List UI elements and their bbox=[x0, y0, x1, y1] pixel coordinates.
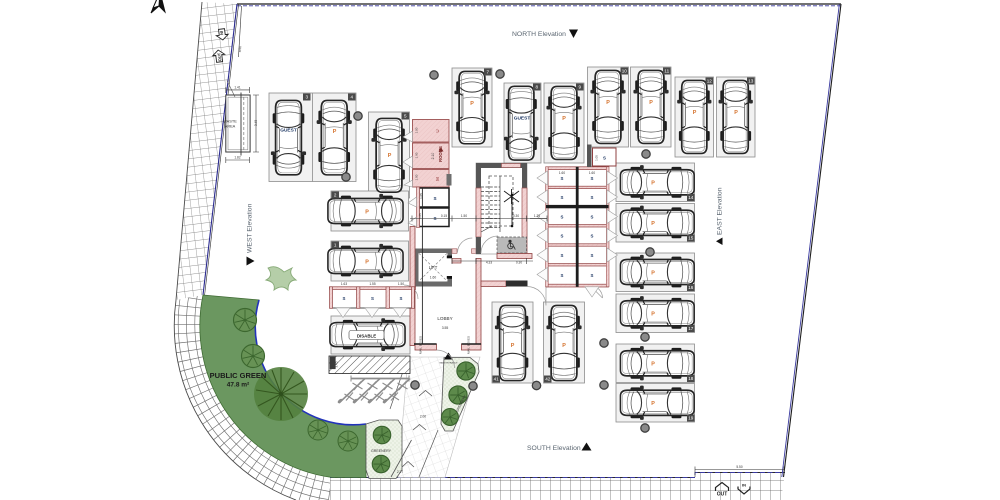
svg-text:1.00: 1.00 bbox=[415, 174, 419, 180]
svg-text:1.60: 1.60 bbox=[589, 171, 595, 175]
svg-text:P: P bbox=[365, 260, 369, 266]
svg-text:MAIL BOXES: MAIL BOXES bbox=[467, 336, 471, 354]
svg-text:P: P bbox=[365, 210, 369, 216]
svg-text:OUT: OUT bbox=[216, 52, 222, 62]
svg-text:14: 14 bbox=[688, 195, 694, 200]
svg-text:U: U bbox=[435, 129, 440, 132]
svg-text:1.25: 1.25 bbox=[534, 214, 540, 218]
svg-text:LIFT: LIFT bbox=[429, 265, 438, 270]
svg-text:0.15: 0.15 bbox=[441, 214, 447, 218]
svg-text:19: 19 bbox=[688, 416, 694, 421]
svg-text:LOBBY: LOBBY bbox=[437, 316, 452, 321]
svg-text:1.63: 1.63 bbox=[341, 282, 347, 286]
svg-text:S: S bbox=[591, 176, 594, 181]
svg-text:S: S bbox=[561, 234, 564, 239]
svg-text:1.50: 1.50 bbox=[398, 282, 404, 286]
svg-text:P: P bbox=[651, 181, 655, 187]
svg-text:1.41: 1.41 bbox=[234, 86, 240, 90]
svg-text:EAST Elevation: EAST Elevation bbox=[717, 187, 724, 235]
svg-text:0.30: 0.30 bbox=[513, 214, 519, 218]
svg-text:S: S bbox=[591, 215, 594, 220]
svg-text:PUBLIC GREEN: PUBLIC GREEN bbox=[210, 371, 267, 380]
svg-text:P: P bbox=[606, 100, 610, 106]
svg-text:S: S bbox=[591, 234, 594, 239]
svg-text:5.50: 5.50 bbox=[736, 465, 742, 469]
svg-text:P: P bbox=[693, 110, 697, 116]
svg-text:1.55: 1.55 bbox=[369, 282, 375, 286]
svg-text:S: S bbox=[433, 196, 436, 201]
svg-text:1.60: 1.60 bbox=[559, 171, 565, 175]
svg-text:1.50: 1.50 bbox=[461, 214, 467, 218]
svg-text:ROOMS: ROOMS bbox=[438, 146, 443, 162]
svg-text:11: 11 bbox=[664, 69, 669, 74]
svg-text:S: S bbox=[400, 296, 403, 301]
svg-text:P: P bbox=[649, 100, 653, 106]
svg-text:P: P bbox=[651, 312, 655, 318]
svg-text:S: S bbox=[603, 156, 606, 161]
svg-text:4.33: 4.33 bbox=[486, 261, 492, 265]
svg-text:1.00: 1.00 bbox=[415, 127, 419, 133]
svg-text:2.00: 2.00 bbox=[420, 415, 426, 419]
svg-text:P: P bbox=[651, 221, 655, 227]
svg-text:1.05: 1.05 bbox=[418, 213, 422, 219]
svg-text:M: M bbox=[435, 177, 440, 181]
svg-text:2: 2 bbox=[334, 193, 337, 198]
svg-text:3.55: 3.55 bbox=[442, 326, 449, 330]
svg-text:4: 4 bbox=[351, 95, 354, 100]
svg-text:1.60: 1.60 bbox=[430, 276, 437, 280]
svg-text:42: 42 bbox=[545, 377, 551, 382]
svg-text:10: 10 bbox=[622, 69, 628, 74]
svg-text:1: 1 bbox=[334, 243, 337, 248]
svg-text:P: P bbox=[651, 362, 655, 368]
svg-text:12: 12 bbox=[707, 79, 713, 84]
svg-text:15: 15 bbox=[688, 236, 694, 241]
svg-text:P: P bbox=[511, 343, 515, 349]
svg-text:16: 16 bbox=[688, 285, 694, 290]
svg-text:WEST Elevation: WEST Elevation bbox=[247, 203, 254, 253]
svg-text:IN: IN bbox=[219, 31, 224, 36]
svg-text:5: 5 bbox=[404, 114, 407, 119]
svg-text:3: 3 bbox=[306, 95, 309, 100]
svg-text:DISABLE: DISABLE bbox=[357, 334, 376, 339]
svg-text:S: S bbox=[561, 195, 564, 200]
svg-text:41: 41 bbox=[494, 377, 500, 382]
svg-text:SOUTH Elevation: SOUTH Elevation bbox=[527, 445, 581, 452]
svg-text:OUT: OUT bbox=[717, 492, 728, 498]
svg-text:P: P bbox=[388, 153, 392, 159]
svg-text:8: 8 bbox=[536, 85, 539, 90]
svg-text:GUEST: GUEST bbox=[280, 128, 297, 134]
svg-text:2.10: 2.10 bbox=[431, 153, 435, 160]
svg-text:GUEST: GUEST bbox=[514, 116, 531, 122]
svg-text:1.82: 1.82 bbox=[234, 156, 240, 160]
svg-text:S: S bbox=[561, 273, 564, 278]
svg-text:NORTH Elevation: NORTH Elevation bbox=[512, 31, 566, 38]
svg-text:S: S bbox=[591, 253, 594, 258]
svg-text:MAIL BOXES: MAIL BOXES bbox=[419, 336, 423, 354]
svg-text:P: P bbox=[470, 101, 474, 107]
svg-text:S: S bbox=[343, 296, 346, 301]
svg-text:S: S bbox=[371, 296, 374, 301]
svg-text:1.05: 1.05 bbox=[595, 155, 599, 161]
svg-text:P: P bbox=[333, 129, 337, 135]
svg-text:2.27: 2.27 bbox=[397, 470, 403, 474]
svg-text:AREA: AREA bbox=[225, 124, 236, 129]
svg-text:S: S bbox=[561, 176, 564, 181]
svg-text:P: P bbox=[734, 110, 738, 116]
svg-text:P: P bbox=[651, 271, 655, 277]
svg-text:7: 7 bbox=[487, 70, 490, 75]
svg-text:1.60: 1.60 bbox=[415, 152, 419, 158]
svg-text:S: S bbox=[591, 273, 594, 278]
svg-text:P: P bbox=[562, 116, 566, 122]
svg-text:3.45: 3.45 bbox=[335, 361, 339, 367]
svg-text:8.56: 8.56 bbox=[238, 46, 242, 53]
svg-text:S: S bbox=[561, 215, 564, 220]
svg-text:S: S bbox=[591, 195, 594, 200]
svg-text:IN: IN bbox=[742, 483, 746, 488]
svg-text:MAIN ENTRANCE: MAIN ENTRANCE bbox=[439, 362, 458, 365]
svg-text:P: P bbox=[562, 343, 566, 349]
svg-text:47.8 m²: 47.8 m² bbox=[227, 382, 250, 389]
svg-text:9: 9 bbox=[579, 85, 582, 90]
svg-text:P: P bbox=[651, 401, 655, 407]
svg-text:17: 17 bbox=[688, 326, 694, 331]
svg-text:GREENERY: GREENERY bbox=[371, 449, 392, 453]
svg-text:0.30: 0.30 bbox=[516, 261, 522, 265]
svg-text:18: 18 bbox=[688, 376, 694, 381]
svg-text:3.45: 3.45 bbox=[254, 120, 258, 126]
svg-text:S: S bbox=[561, 253, 564, 258]
svg-text:13: 13 bbox=[748, 79, 754, 84]
